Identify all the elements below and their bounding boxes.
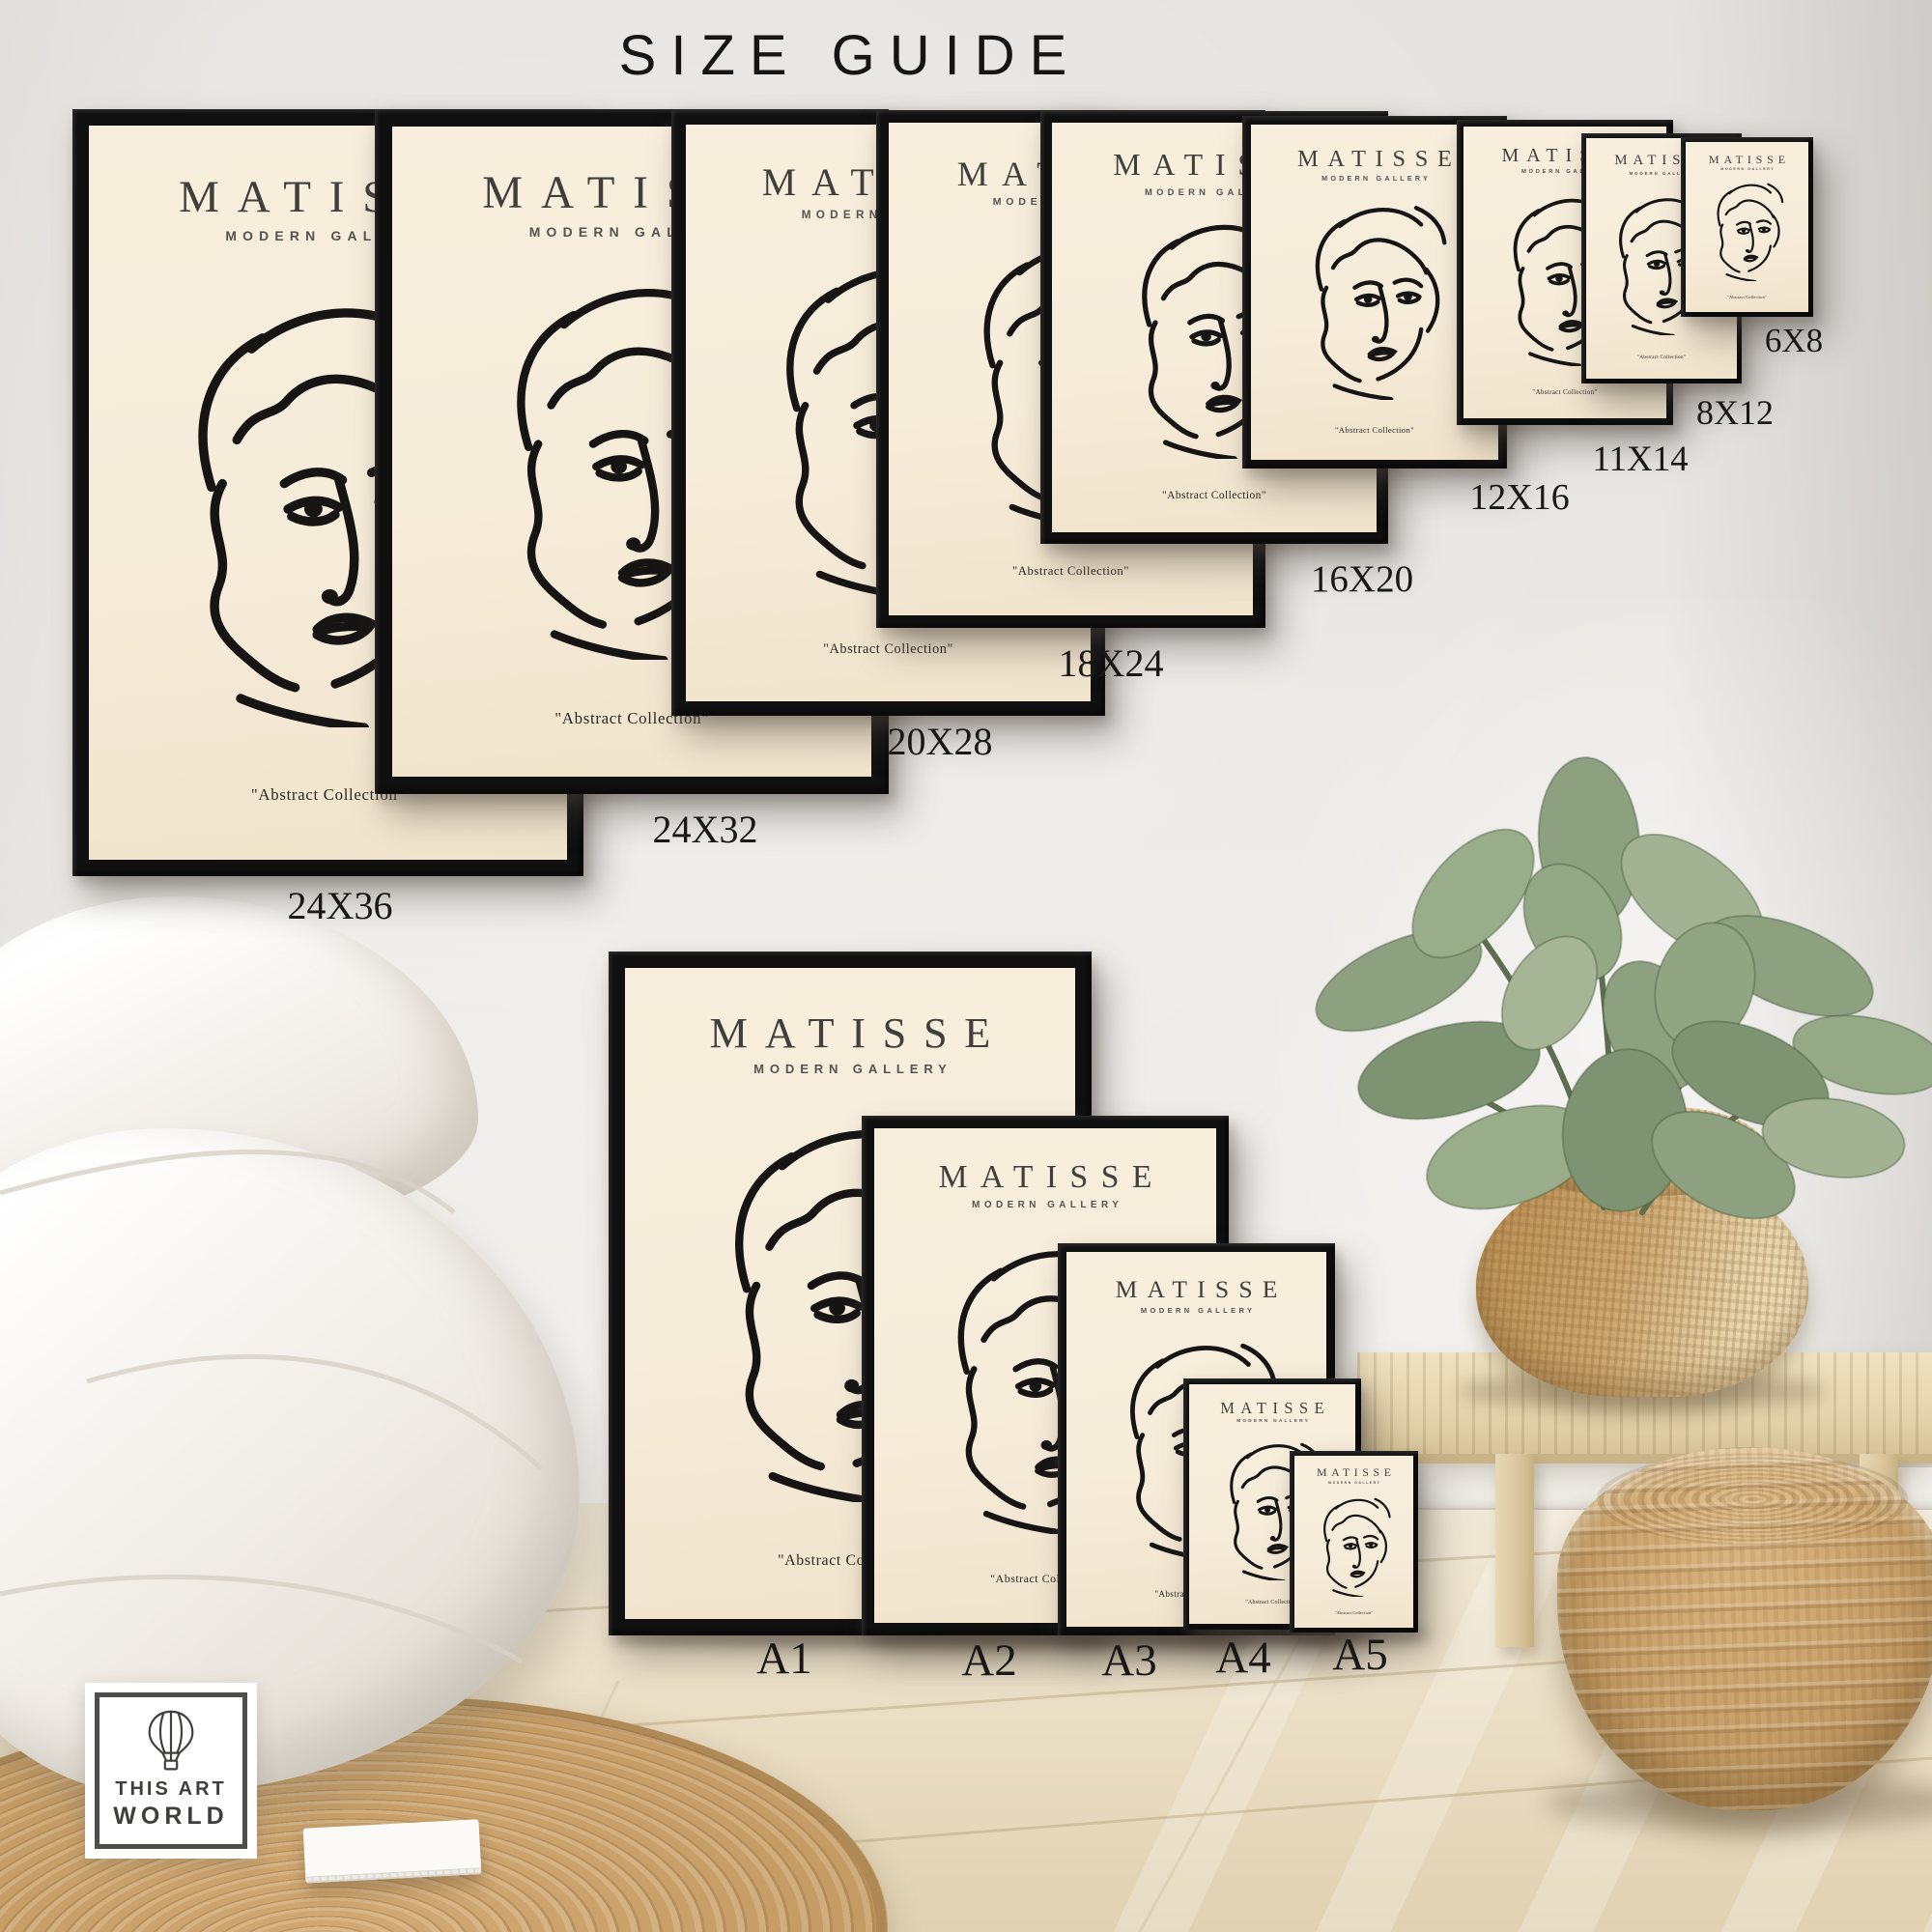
page-title: SIZE GUIDE — [619, 23, 1082, 88]
poster-paper: MATISSEMODERN GALLERY"Abstract Collectio… — [1294, 1456, 1413, 1628]
size-label-A5: A5 — [1332, 1633, 1387, 1678]
bench-leg — [1495, 1454, 1534, 1647]
poster-title: MATISSE — [625, 1009, 1075, 1058]
size-label-A2: A2 — [961, 1638, 1016, 1684]
size-label-A1: A1 — [756, 1636, 811, 1682]
poster-frame-A5: MATISSEMODERN GALLERY"Abstract Collectio… — [1290, 1451, 1418, 1633]
poster-subtitle: MODERN GALLERY — [625, 1062, 1075, 1076]
size-label-16X20: 16X20 — [1311, 560, 1413, 598]
line-art-face — [1294, 1491, 1413, 1597]
poster-caption: "Abstract Collection" — [889, 564, 1253, 579]
poster-paper: MATISSEMODERN GALLERY"Abstract Collectio… — [1686, 142, 1808, 312]
hot-air-balloon-icon — [141, 1705, 201, 1775]
poster-frame-6X8: MATISSEMODERN GALLERY"Abstract Collectio… — [1681, 137, 1813, 317]
poster-caption: "Abstract Collection" — [1052, 490, 1377, 501]
poster-caption: "Abstract Collection" — [1463, 388, 1666, 396]
size-label-20X28: 20X28 — [888, 723, 993, 761]
size-label-24X32: 24X32 — [653, 810, 758, 849]
poster-caption: "Abstract Collection" — [1686, 295, 1808, 299]
poster-title: MATISSE — [1294, 1466, 1413, 1479]
woven-basket-rim — [1515, 1107, 1770, 1196]
poster-title: MATISSE — [874, 1159, 1216, 1196]
poster-subtitle: MODERN GALLERY — [1294, 1481, 1413, 1485]
brand-logo-frame: THIS ART WORLD — [95, 1692, 247, 1849]
poster-subtitle: MODERN GALLERY — [874, 1200, 1216, 1210]
line-art-face — [1686, 176, 1808, 281]
size-label-24X36: 24X36 — [288, 887, 393, 925]
brand-logo: THIS ART WORLD — [85, 1683, 257, 1859]
brand-logo-line2: WORLD — [113, 1803, 228, 1831]
size-guide-photo: SIZE GUIDE MATISSEMODERN GALLERY"Abstrac… — [0, 0, 1932, 1932]
woven-basket — [1476, 1167, 1808, 1397]
size-label-11X14: 11X14 — [1592, 441, 1688, 477]
size-label-12X16: 12X16 — [1469, 479, 1569, 516]
poster-title: MATISSE — [1189, 1399, 1355, 1418]
poster-subtitle: MODERN GALLERY — [1686, 167, 1808, 171]
poster-title: MATISSE — [1686, 153, 1808, 167]
poster-caption: "Abstract Collection" — [1294, 1610, 1413, 1615]
size-label-A4: A4 — [1215, 1635, 1270, 1681]
size-label-18X24: 18X24 — [1059, 644, 1164, 683]
poster-caption: "Abstract Collection" — [1586, 355, 1737, 360]
poster-caption: "Abstract Collection" — [1251, 425, 1498, 435]
book — [303, 1819, 482, 1883]
brand-logo-line1: THIS ART — [115, 1778, 226, 1801]
poster-subtitle: MODERN GALLERY — [1066, 1306, 1326, 1315]
poster-title: MATISSE — [1066, 1275, 1326, 1304]
jute-pouf-top — [1596, 1453, 1909, 1546]
size-label-6X8: 6X8 — [1765, 324, 1823, 357]
size-label-A3: A3 — [1101, 1638, 1156, 1684]
poster-subtitle: MODERN GALLERY — [1189, 1419, 1355, 1424]
poster-caption: "Abstract Collection" — [686, 641, 1091, 658]
size-label-8X12: 8X12 — [1696, 395, 1774, 430]
